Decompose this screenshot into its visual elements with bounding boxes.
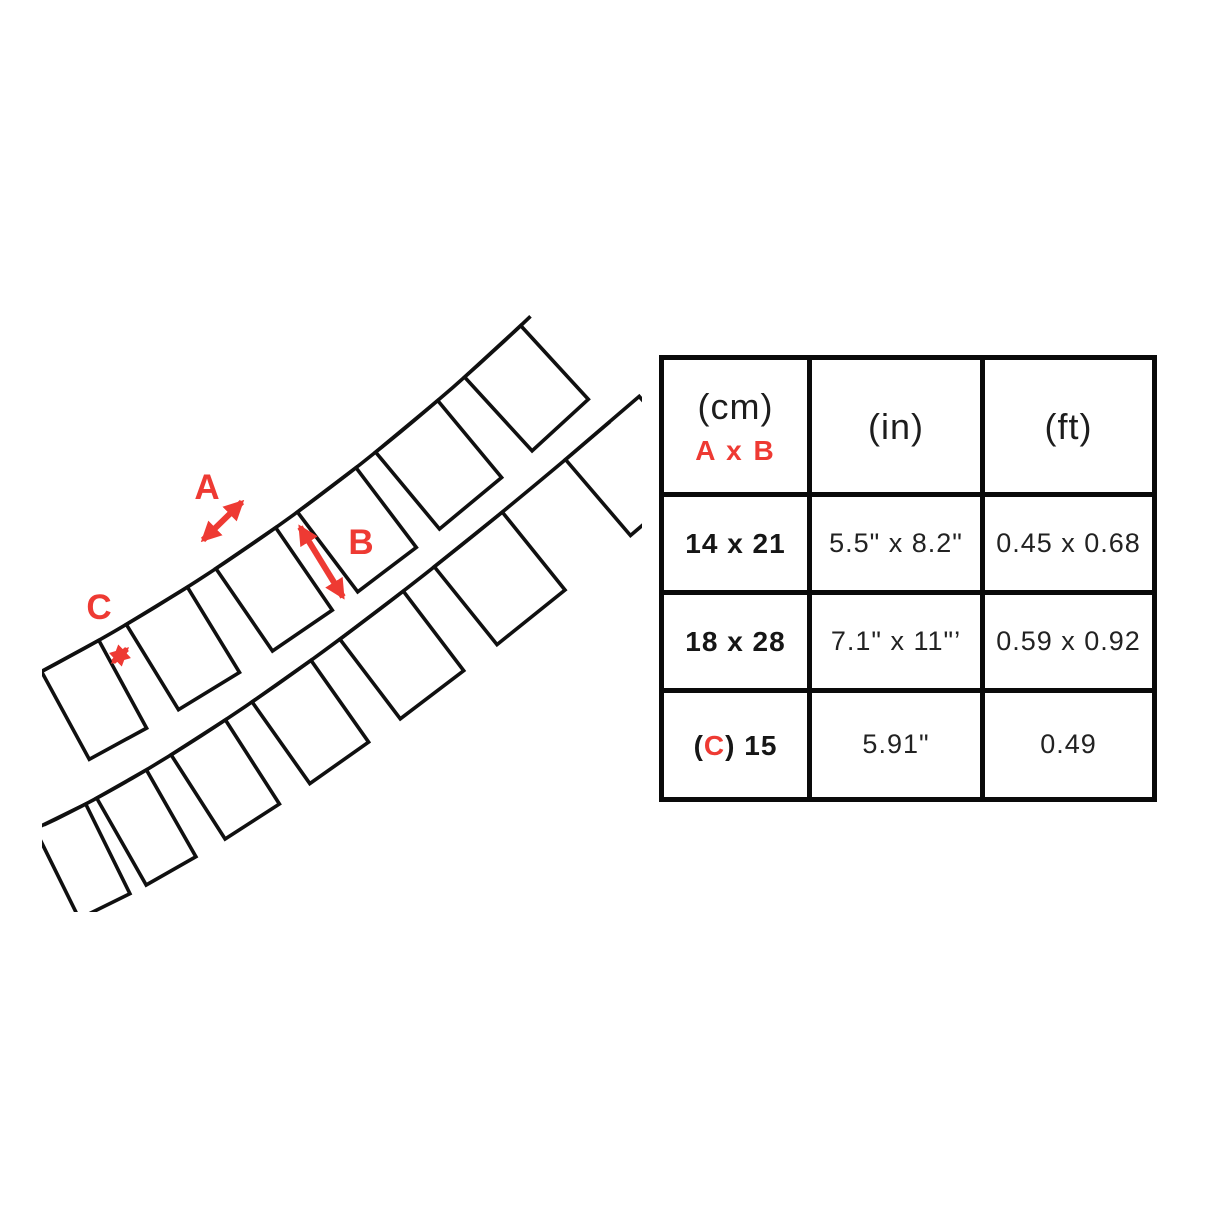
cm-unit-label: (cm) (698, 384, 774, 429)
c-paren-open: ( (694, 730, 704, 761)
size-ft-18x28: 0.59 x 0.92 (985, 595, 1152, 693)
ft-value: 0.45 x 0.68 (996, 527, 1141, 561)
edging-panel (376, 401, 502, 530)
size-in-18x28: 7.1" x 11"’ (812, 595, 985, 693)
cm-value: 18 x 28 (685, 624, 785, 659)
a-x-b-label: A x B (695, 433, 776, 468)
edging-panel (35, 804, 130, 919)
ft-value: 0.59 x 0.92 (996, 625, 1141, 659)
dimension-arrow-c (113, 649, 127, 662)
size-cm-c15: (C) 15 (664, 693, 812, 797)
size-ft-c15: 0.49 (985, 693, 1152, 797)
c-letter: C (704, 730, 725, 761)
cm-value: 14 x 21 (685, 526, 785, 561)
c-paren-close: ) 15 (725, 730, 777, 761)
size-in-c15: 5.91" (812, 693, 985, 797)
dimension-label-b: B (348, 523, 373, 562)
size-cm-14x21: 14 x 21 (664, 497, 812, 595)
size-table: (cm) A x B (in) (ft) 14 x 21 5.5" x 8.2"… (659, 355, 1157, 802)
size-ft-14x21: 0.45 x 0.68 (985, 497, 1152, 595)
dimension-arrow-a (203, 502, 242, 540)
edging-panel (465, 326, 589, 451)
edging-panel (42, 640, 147, 759)
header-cell-ft: (ft) (985, 360, 1152, 497)
in-value: 5.91" (862, 728, 929, 762)
edging-panel (434, 512, 565, 645)
edging-panel (340, 591, 464, 719)
cm-value-c: (C) 15 (694, 728, 778, 763)
in-value: 5.5" x 8.2" (829, 527, 963, 561)
edging-panel (252, 660, 369, 783)
in-unit-label: (in) (868, 404, 924, 449)
size-in-14x21: 5.5" x 8.2" (812, 497, 985, 595)
ft-unit-label: (ft) (1045, 404, 1093, 449)
edging-panel (126, 587, 239, 710)
size-cm-18x28: 18 x 28 (664, 595, 812, 693)
dimension-label-a: A (194, 468, 219, 507)
edging-strips (35, 316, 704, 918)
dimension-label-c: C (86, 588, 111, 627)
ft-value: 0.49 (1040, 728, 1097, 762)
rail-strip (42, 316, 531, 671)
edging-dimensions-infographic: A B C (cm) A x B (in) (ft) 14 x 21 5.5" … (0, 0, 1214, 1214)
in-value: 7.1" x 11"’ (831, 625, 961, 659)
edging-panel (171, 720, 279, 839)
header-cell-cm: (cm) A x B (664, 360, 812, 497)
edging-panel (97, 770, 196, 885)
header-cell-in: (in) (812, 360, 985, 497)
